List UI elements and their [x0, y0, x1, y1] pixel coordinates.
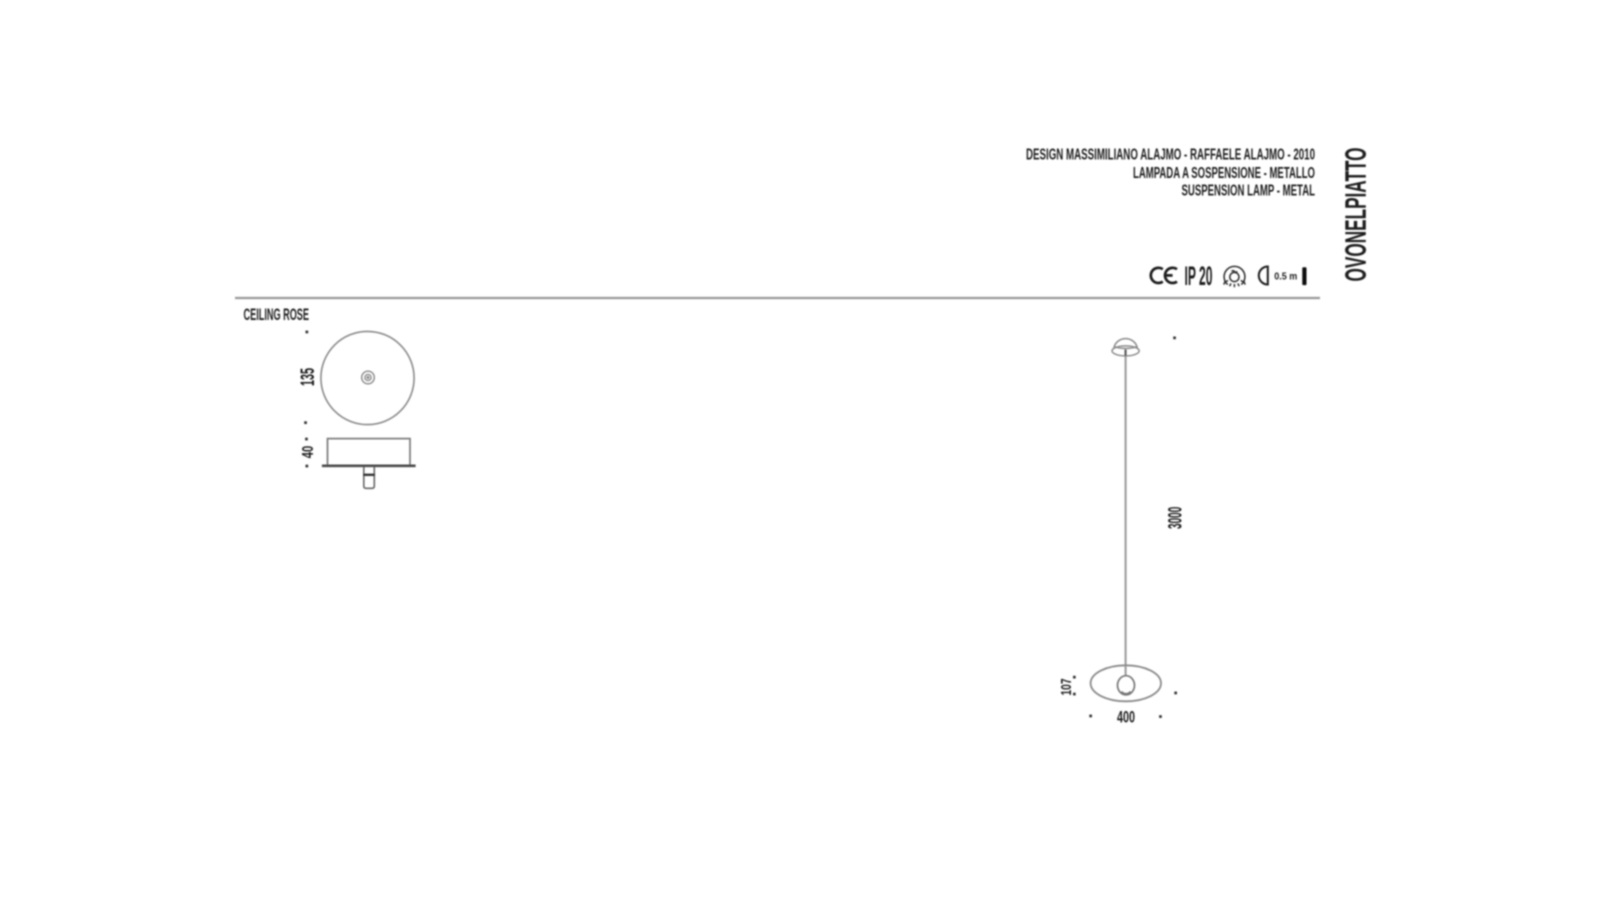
- svg-text:107: 107: [1058, 679, 1075, 696]
- svg-text:0.5 m: 0.5 m: [1274, 272, 1297, 283]
- svg-text:CEILING ROSE: CEILING ROSE: [244, 305, 310, 324]
- svg-text:LAMPADA A SOSPENSIONE - METALL: LAMPADA A SOSPENSIONE - METALLO: [1133, 165, 1315, 182]
- svg-text:3000: 3000: [1166, 507, 1187, 529]
- svg-text:OVONELPIATTO: OVONELPIATTO: [1340, 148, 1373, 282]
- svg-text:135: 135: [298, 368, 319, 386]
- svg-text:SUSPENSION LAMP - METAL: SUSPENSION LAMP - METAL: [1182, 183, 1316, 200]
- svg-text:40: 40: [300, 446, 317, 459]
- svg-text:400: 400: [1117, 708, 1135, 727]
- svg-text:DESIGN MASSIMILIANO ALAJMO - R: DESIGN MASSIMILIANO ALAJMO - RAFFAELE AL…: [1026, 147, 1315, 164]
- svg-text:IP 20: IP 20: [1185, 261, 1213, 291]
